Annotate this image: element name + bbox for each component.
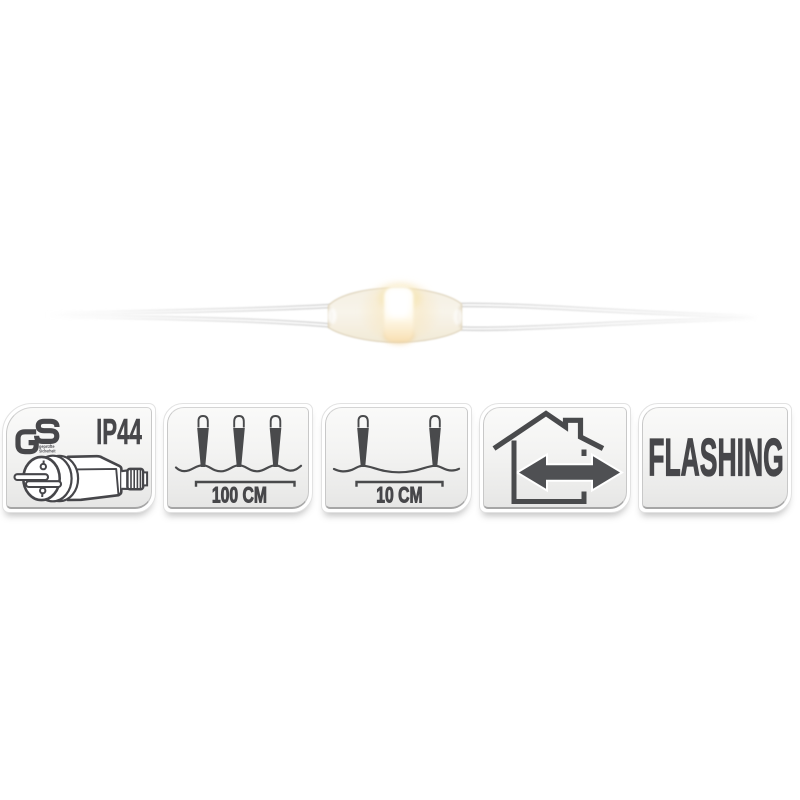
svg-text:10 CM: 10 CM [376, 483, 422, 508]
svg-text:IP44: IP44 [96, 413, 142, 453]
svg-text:FLASHING: FLASHING [648, 427, 783, 486]
svg-text:Sicherheit: Sicherheit [39, 449, 56, 454]
svg-text:100 CM: 100 CM [212, 483, 267, 508]
